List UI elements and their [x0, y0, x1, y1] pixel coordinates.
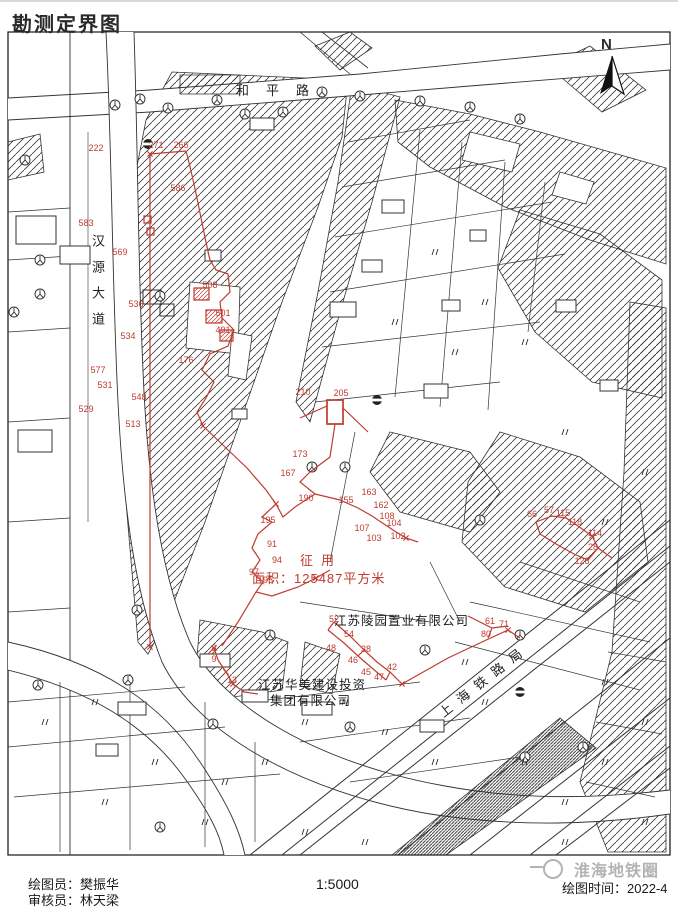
boundary-point-label: 61: [485, 616, 495, 626]
boundary-point-label: 91: [267, 539, 277, 549]
utility-pole-icon: [33, 680, 43, 690]
utility-pole-icon: [9, 307, 19, 317]
boundary-point-label: 155: [338, 495, 353, 505]
boundary-point-label: 195: [260, 515, 275, 525]
boundary-point-label: 266: [173, 140, 188, 150]
utility-pole-icon: [515, 114, 525, 124]
boundary-point-label: 271: [148, 140, 163, 150]
boundary-point-label: 107: [354, 523, 369, 533]
boundary-point-label: 531: [97, 380, 112, 390]
utility-pole-icon: [415, 96, 425, 106]
boundary-point-label: 66: [527, 509, 537, 519]
boundary-point-label: 9: [211, 654, 216, 664]
company-label-huamei-line2: 集团有限公司: [270, 690, 351, 709]
road-label-hanyuan: 汉源大道: [88, 234, 107, 338]
boundary-point-label: 94: [272, 555, 282, 565]
boundary-point-label: 103: [366, 533, 381, 543]
utility-pole-icon: [420, 645, 430, 655]
utility-pole-icon: [20, 155, 30, 165]
boundary-point-label: 210: [295, 387, 310, 397]
boundary-point-label: 173: [292, 449, 307, 459]
north-label: N: [601, 36, 612, 53]
boundary-point-label: 71: [499, 619, 509, 629]
boundary-point-label: 162: [373, 500, 388, 510]
boundary-point-label: 42: [387, 662, 397, 672]
utility-pole-icon: [345, 722, 355, 732]
boundary-point-label: 205: [333, 388, 348, 398]
boundary-point-label: 534: [120, 331, 135, 341]
watermark-dash: [530, 866, 544, 868]
boundary-point-label: 8: [211, 643, 216, 653]
utility-pole-icon: [35, 289, 45, 299]
boundary-point-label: 118: [568, 517, 582, 527]
boundary-point-label: 583: [78, 218, 93, 228]
utility-pole-icon: [110, 100, 120, 110]
boundary-point-label: 45: [361, 667, 371, 677]
boundary-point-label: 80: [481, 629, 491, 639]
boundary-point-label: 586: [170, 183, 185, 193]
boundary-point-label: 57: [544, 505, 554, 515]
utility-pole-icon: [35, 255, 45, 265]
well-icon: [515, 687, 525, 697]
scale-label: 1:5000: [316, 876, 359, 892]
utility-pole-icon: [208, 719, 218, 729]
boundary-point-label: 513: [125, 419, 140, 429]
reviewer-label: 审核员：林天梁: [28, 890, 119, 909]
road-label-heping: 和平路: [236, 80, 326, 99]
boundary-point-label: 163: [361, 487, 376, 497]
company-label-lingyuan: 江苏陵园置业有限公司: [334, 610, 469, 629]
boundary-point-label: 529: [78, 404, 93, 414]
boundary-point-label: 38: [361, 644, 371, 654]
boundary-point-label: 128: [574, 556, 589, 566]
utility-pole-icon: [163, 103, 173, 113]
boundary-point-label: 190: [298, 493, 313, 503]
boundary-point-label: 13: [227, 675, 237, 685]
boundary-point-label: 222: [88, 143, 103, 153]
utility-pole-icon: [355, 91, 365, 101]
boundary-point-label: 46: [348, 655, 358, 665]
utility-pole-icon: [340, 462, 350, 472]
page-title: 勘测定界图: [12, 8, 122, 37]
boundary-point-label: 491: [215, 325, 230, 335]
boundary-point-label: 167: [280, 468, 295, 478]
expropriation-label: 征用: [300, 550, 342, 569]
boundary-point-label: 52: [329, 614, 339, 624]
utility-pole-icon: [135, 94, 145, 104]
boundary-point-label: 501: [215, 308, 230, 318]
watermark-text: 淮海地铁圈: [574, 857, 659, 881]
boundary-point-label: 569: [112, 247, 127, 257]
boundary-point-label: 548: [131, 392, 146, 402]
utility-pole-icon: [265, 630, 275, 640]
map-canvas: [0, 2, 678, 898]
boundary-point-label: 577: [90, 365, 105, 375]
boundary-point-label: 536: [128, 299, 143, 309]
utility-pole-icon: [123, 675, 133, 685]
survey-map-page: { "page": { "title": "勘测定界图" }, "compass…: [0, 0, 678, 898]
boundary-point-label: 102: [390, 531, 405, 541]
utility-pole-icon: [578, 742, 588, 752]
utility-pole-icon: [155, 822, 165, 832]
utility-pole-icon: [278, 107, 288, 117]
watermark-logo-icon: [543, 859, 563, 879]
boundary-point-label: 97: [249, 567, 259, 577]
boundary-point-label: 95: [263, 575, 273, 585]
utility-pole-icon: [212, 95, 222, 105]
utility-pole-icon: [475, 515, 485, 525]
boundary-point-label: 48: [326, 643, 336, 653]
utility-pole-icon: [520, 752, 530, 762]
boundary-point-label: 176: [178, 355, 193, 365]
boundary-point-label: 47: [374, 672, 384, 682]
boundary-point-label: 508: [202, 280, 217, 290]
utility-pole-icon: [465, 102, 475, 112]
utility-pole-icon: [240, 109, 250, 119]
boundary-point-label: 28: [588, 542, 598, 552]
well-icon: [372, 395, 382, 405]
boundary-point-label: 104: [386, 518, 401, 528]
boundary-point-label: 54: [344, 629, 354, 639]
utility-pole-icon: [132, 605, 142, 615]
utility-pole-icon: [155, 291, 165, 301]
boundary-point-label: 114: [588, 528, 602, 538]
